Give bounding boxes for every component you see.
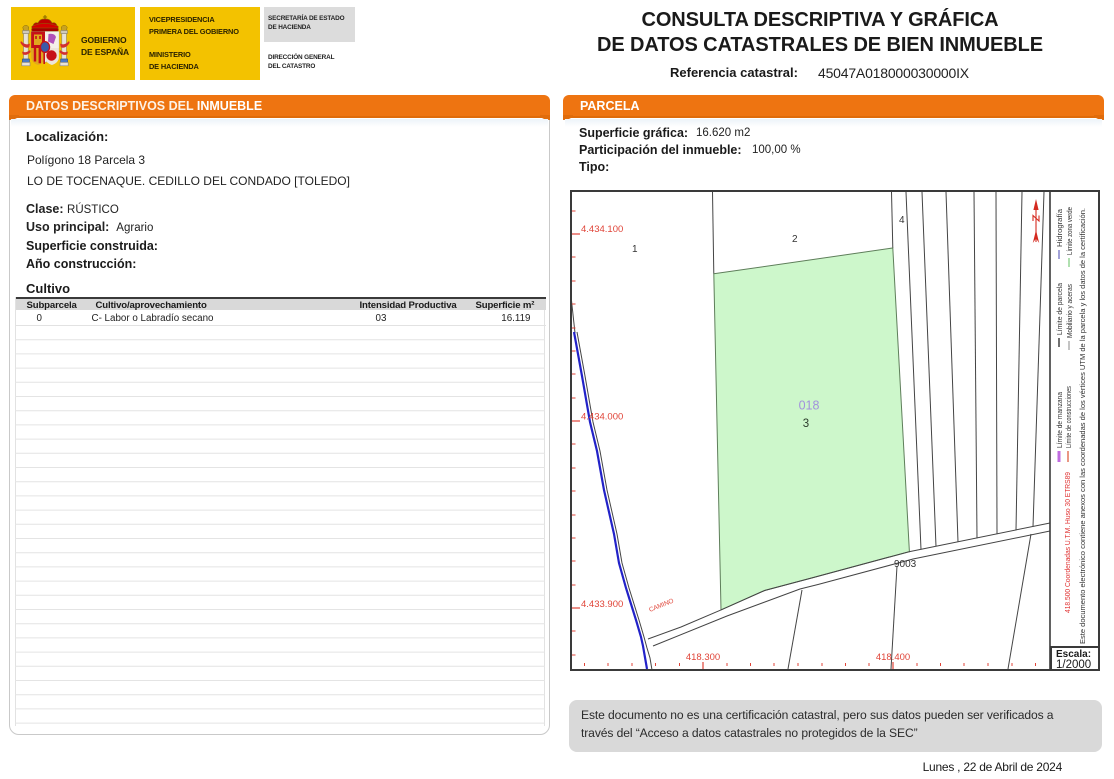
svg-text:Límite de manzana: Límite de manzana [1055,392,1064,448]
svg-text:Límite de construcciones: Límite de construcciones [1064,386,1073,448]
svg-text:418.300: 418.300 [686,652,720,663]
svg-text:CAMINO: CAMINO [648,598,675,614]
svg-text:Mobiliario y aceras: Mobiliario y aceras [1065,284,1074,338]
svg-text:418.500 Coordenadas U.T.M. Hus: 418.500 Coordenadas U.T.M. Huso 30 ETRS8… [1063,472,1072,613]
svg-text:9003: 9003 [894,559,917,570]
svg-text:Límite zona verde: Límite zona verde [1065,207,1074,255]
svg-text:Hidrografía: Hidrografía [1055,209,1064,247]
svg-text:018: 018 [799,399,820,413]
svg-text:Este documento electrónico con: Este documento electrónico contiene anex… [1078,208,1087,644]
svg-text:2: 2 [792,234,798,245]
svg-text:4.434.000: 4.434.000 [581,412,623,423]
svg-text:1: 1 [632,244,638,255]
svg-text:Límite de parcela: Límite de parcela [1055,283,1064,335]
svg-text:418.400: 418.400 [876,652,910,663]
svg-text:4.434.100: 4.434.100 [581,224,623,235]
svg-text:3: 3 [803,418,809,430]
svg-text:4: 4 [899,215,905,226]
svg-text:4.433.900: 4.433.900 [581,599,623,610]
